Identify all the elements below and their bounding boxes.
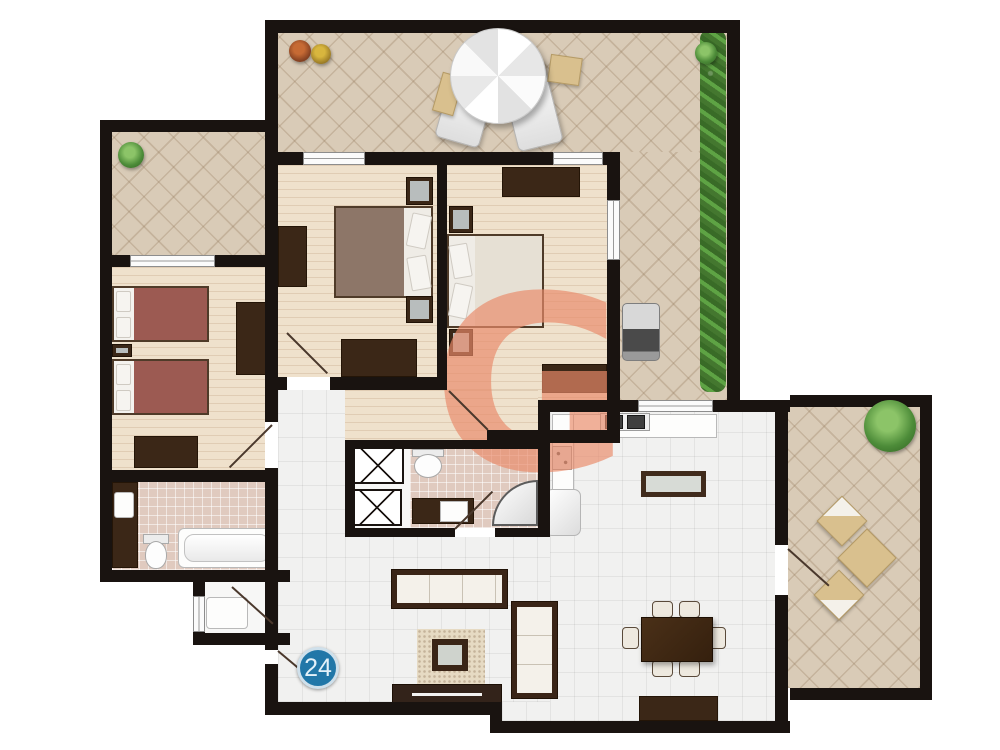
nightstand-icon [112, 344, 132, 357]
wall [790, 395, 932, 407]
nightstand-icon [449, 329, 473, 356]
wall [775, 595, 788, 733]
wall [100, 570, 290, 582]
wall [330, 377, 447, 390]
sofa-icon [391, 569, 508, 609]
wall [727, 20, 740, 412]
single-bed-icon [112, 286, 209, 342]
cabinet-icon [278, 226, 307, 287]
double-bed-icon [334, 206, 433, 298]
wardrobe-icon [236, 302, 266, 375]
window-icon [193, 596, 205, 632]
nightstand-icon [406, 177, 433, 205]
wall [775, 412, 788, 545]
wall [345, 440, 545, 449]
unit-number-badge: 24 [297, 647, 339, 689]
unit-number-label: 24 [304, 654, 332, 683]
dining-chair-icon [622, 627, 639, 649]
wall [920, 395, 932, 700]
bathtub-icon [178, 528, 276, 568]
hedge-icon [700, 30, 726, 392]
window-icon [607, 200, 620, 260]
kitchen-island-icon [641, 471, 706, 497]
wall [265, 265, 278, 422]
wall [345, 440, 355, 537]
single-bed-icon [112, 359, 209, 415]
wall [490, 721, 790, 733]
parasol-icon [450, 28, 546, 124]
window-icon [303, 152, 365, 165]
toilet-icon [414, 454, 442, 478]
dining-chair-icon [652, 660, 673, 677]
wall [345, 528, 455, 537]
dining-table-icon [641, 617, 713, 662]
toilet-icon [145, 541, 167, 569]
dining-chair-icon [679, 601, 700, 618]
shaft-icon [352, 489, 402, 526]
wall [437, 152, 447, 390]
coffee-table-icon [432, 639, 468, 671]
living-floor-step [502, 702, 550, 721]
potted-plant-icon [118, 142, 144, 168]
side-table-icon [547, 54, 583, 86]
wall [495, 528, 550, 537]
sink-icon [114, 492, 134, 518]
dresser-icon [341, 339, 417, 377]
potted-plant-icon [695, 42, 717, 64]
wall [538, 400, 550, 532]
entry-cabinet-icon [206, 597, 248, 629]
kitchen-sink-icon [552, 446, 572, 470]
grill-icon [622, 303, 660, 361]
bush-icon [864, 400, 916, 452]
wall [193, 633, 290, 645]
wall [277, 702, 502, 715]
wall [265, 20, 278, 265]
window-icon [130, 255, 215, 267]
fridge-icon [545, 489, 581, 536]
wall [265, 377, 287, 390]
potted-plant-icon [311, 44, 331, 64]
window-icon [553, 152, 603, 165]
sofa-icon [511, 601, 558, 699]
dining-chair-icon [652, 601, 673, 618]
double-bed-icon [447, 234, 544, 328]
shaft-icon [352, 447, 404, 484]
wall [100, 120, 278, 132]
wall [790, 688, 932, 700]
dresser-icon [502, 167, 580, 197]
nightstand-icon [406, 296, 433, 323]
potted-plant-icon [289, 40, 311, 62]
sideboard-icon [639, 696, 718, 721]
dining-chair-icon [679, 660, 700, 677]
dresser-icon [134, 436, 198, 468]
dresser-icon [542, 364, 607, 393]
wall [100, 120, 112, 582]
floor-plan: G 24 [0, 0, 1000, 750]
window-icon [638, 400, 713, 412]
wall [100, 470, 278, 482]
nightstand-icon [449, 206, 473, 233]
